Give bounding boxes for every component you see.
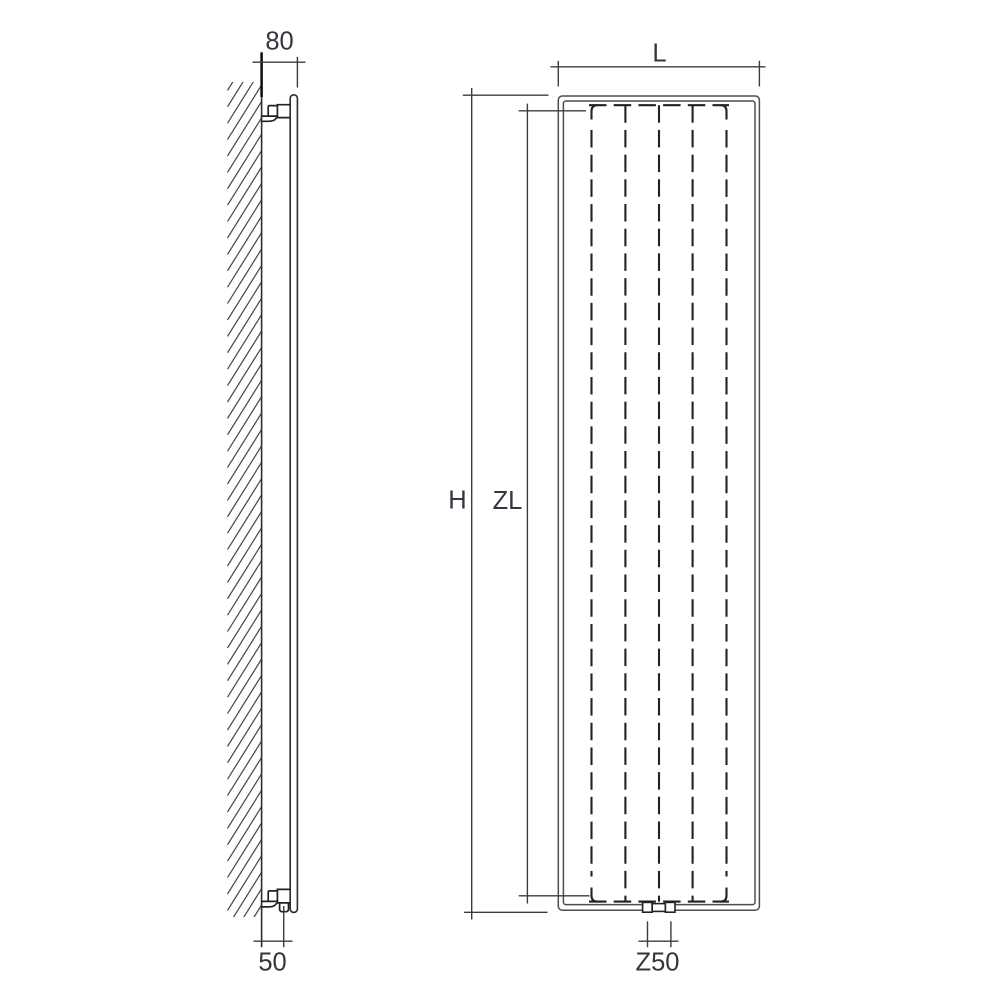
svg-text:L: L [652, 40, 666, 68]
svg-text:Z50: Z50 [636, 949, 680, 977]
svg-text:H: H [448, 487, 466, 515]
svg-text:80: 80 [265, 28, 293, 56]
svg-text:ZL: ZL [493, 487, 523, 515]
svg-text:50: 50 [258, 949, 286, 977]
